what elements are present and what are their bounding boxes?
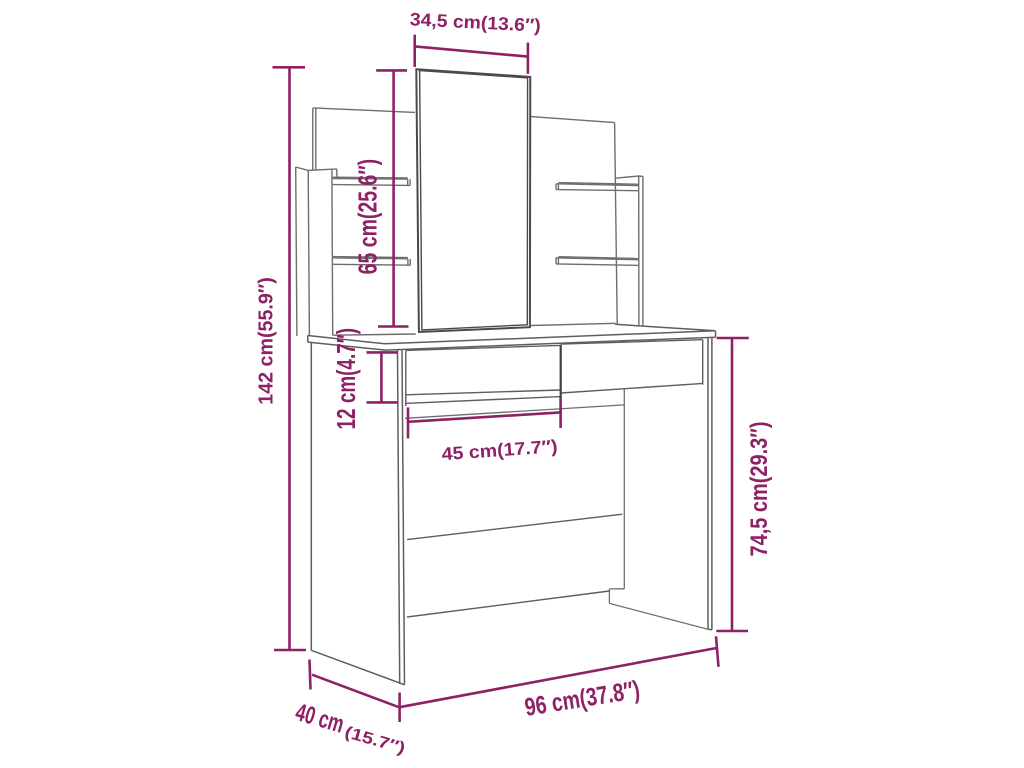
svg-text:12 cm(4.7″): 12 cm(4.7″) <box>333 328 361 430</box>
svg-text:74,5 cm(29.3″): 74,5 cm(29.3″) <box>746 422 773 557</box>
svg-text:65 cm(25.6″): 65 cm(25.6″) <box>354 159 382 275</box>
svg-text:142 cm(55.9″): 142 cm(55.9″) <box>256 277 278 405</box>
